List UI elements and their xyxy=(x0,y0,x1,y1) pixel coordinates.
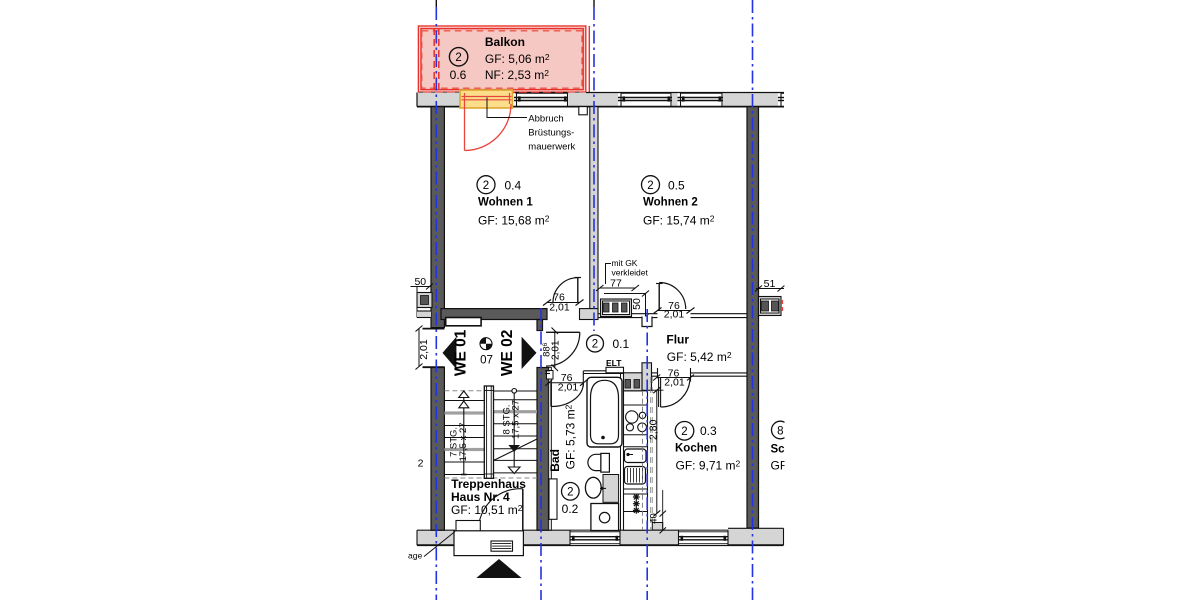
svg-text:ELT: ELT xyxy=(606,358,622,368)
svg-text:GF: 15,68 m2: GF: 15,68 m2 xyxy=(478,214,550,228)
svg-text:Haus Nr. 4: Haus Nr. 4 xyxy=(451,490,510,504)
svg-text:2: 2 xyxy=(592,339,598,351)
svg-text:2: 2 xyxy=(455,52,461,64)
svg-text:mauerwerk: mauerwerk xyxy=(528,142,575,153)
svg-text:2,01: 2,01 xyxy=(551,340,562,360)
svg-text:2,01: 2,01 xyxy=(664,308,685,320)
svg-text:0.4: 0.4 xyxy=(505,179,522,193)
svg-text:2: 2 xyxy=(418,458,424,470)
svg-text:NF: 2,53 m2: NF: 2,53 m2 xyxy=(485,68,549,82)
svg-text:0.6: 0.6 xyxy=(450,68,467,82)
svg-text:40: 40 xyxy=(649,513,660,524)
svg-text:0.2: 0.2 xyxy=(562,502,579,516)
svg-text:GF: 5,73 m2: GF: 5,73 m2 xyxy=(563,404,577,469)
svg-text:2: 2 xyxy=(567,487,573,499)
svg-text:0.5: 0.5 xyxy=(668,179,685,193)
svg-text:Balkon: Balkon xyxy=(485,35,525,49)
svg-text:17,5 x 27: 17,5 x 27 xyxy=(511,400,522,439)
svg-text:2,01: 2,01 xyxy=(558,381,579,393)
svg-text:2: 2 xyxy=(483,180,489,192)
svg-text:mit GK: mit GK xyxy=(612,258,638,268)
svg-text:WE 02: WE 02 xyxy=(499,330,516,377)
svg-text:50: 50 xyxy=(631,298,643,310)
svg-text:2,01: 2,01 xyxy=(418,339,430,360)
svg-text:Wohnen 2: Wohnen 2 xyxy=(643,197,698,209)
svg-text:2,01: 2,01 xyxy=(549,302,570,314)
svg-text:WE 01: WE 01 xyxy=(452,329,469,376)
svg-text:2: 2 xyxy=(647,180,653,192)
svg-text:verkleidet: verkleidet xyxy=(612,268,649,278)
svg-text:Brüstungs-: Brüstungs- xyxy=(528,128,574,139)
svg-text:17,5 x 27: 17,5 x 27 xyxy=(458,422,469,461)
svg-text:Kochen: Kochen xyxy=(675,443,717,455)
svg-text:0.1: 0.1 xyxy=(613,337,630,351)
svg-text:0.3: 0.3 xyxy=(700,424,717,438)
svg-text:Flur: Flur xyxy=(666,332,689,346)
svg-text:Wohnen 1: Wohnen 1 xyxy=(478,197,533,209)
svg-text:age: age xyxy=(408,551,422,561)
svg-text:Abbruch: Abbruch xyxy=(528,113,563,124)
svg-text:07: 07 xyxy=(480,354,493,366)
svg-text:GF: 9,71 m2: GF: 9,71 m2 xyxy=(676,459,741,473)
svg-text:GF: 5,06 m2: GF: 5,06 m2 xyxy=(485,52,550,66)
svg-text:8: 8 xyxy=(777,425,783,437)
svg-text:2,01: 2,01 xyxy=(664,376,685,388)
svg-text:2,80: 2,80 xyxy=(647,419,659,440)
svg-text:GF: 5,42 m2: GF: 5,42 m2 xyxy=(667,350,732,364)
svg-text:2: 2 xyxy=(681,426,687,438)
svg-text:GF: 15,74 m2: GF: 15,74 m2 xyxy=(643,214,715,228)
svg-text:51: 51 xyxy=(764,278,776,290)
svg-text:Bad: Bad xyxy=(548,449,562,472)
svg-text:77: 77 xyxy=(610,278,622,290)
